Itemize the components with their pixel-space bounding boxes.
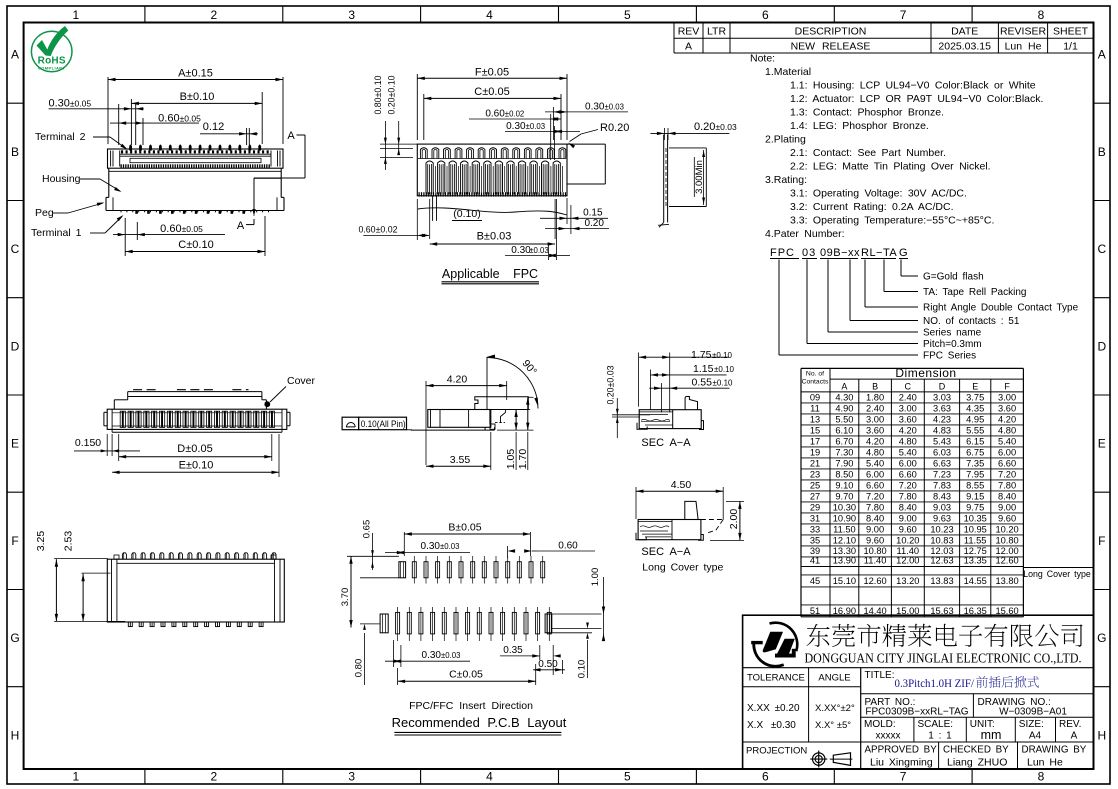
svg-text:3.00Min: 3.00Min: [694, 160, 705, 194]
svg-text:16.35: 16.35: [964, 606, 987, 616]
svg-text:G: G: [1097, 631, 1106, 645]
svg-text:(0.10): (0.10): [453, 208, 480, 220]
svg-text:12.03: 12.03: [930, 546, 953, 556]
svg-text:13.80: 13.80: [995, 576, 1018, 586]
svg-text:5.40: 5.40: [899, 447, 917, 457]
svg-text:10.20: 10.20: [995, 524, 1018, 534]
svg-text:3.60: 3.60: [899, 414, 917, 424]
svg-text:29: 29: [810, 502, 820, 512]
svg-text:Liu Xingming: Liu Xingming: [870, 757, 933, 769]
svg-text:F: F: [1004, 381, 1010, 391]
svg-text:6.60: 6.60: [899, 469, 917, 479]
svg-text:33: 33: [810, 524, 820, 534]
svg-text:APPROVED BY: APPROVED BY: [865, 745, 938, 756]
svg-text:A: A: [11, 48, 19, 62]
svg-text:Series name: Series name: [923, 328, 982, 339]
svg-text:9.60: 9.60: [998, 513, 1016, 523]
svg-text:Peg: Peg: [35, 207, 54, 219]
svg-text:7: 7: [900, 770, 907, 784]
svg-text:X.X ±0.30: X.X ±0.30: [747, 720, 796, 731]
svg-text:3.00: 3.00: [998, 392, 1016, 402]
svg-text:4.35: 4.35: [966, 403, 984, 413]
svg-text:6: 6: [762, 8, 769, 22]
svg-text:A: A: [1098, 48, 1106, 62]
svg-text:10.90: 10.90: [833, 513, 856, 523]
svg-text:13: 13: [810, 414, 820, 424]
svg-text:NO. of contacts : 51: NO. of contacts : 51: [923, 316, 1020, 327]
svg-text:C±0.05: C±0.05: [449, 669, 483, 681]
svg-text:0.12: 0.12: [203, 121, 224, 133]
svg-text:6.00: 6.00: [866, 469, 884, 479]
svg-text:27: 27: [810, 491, 820, 501]
svg-text:12.75: 12.75: [964, 546, 987, 556]
svg-text:4.50: 4.50: [671, 479, 692, 491]
svg-text:16.90: 16.90: [833, 606, 856, 616]
svg-text:6.00: 6.00: [899, 458, 917, 468]
svg-text:35: 35: [810, 535, 820, 545]
svg-text:B±0.05: B±0.05: [448, 522, 481, 534]
svg-text:5: 5: [624, 8, 631, 22]
svg-text:0.60±0.05: 0.60±0.05: [160, 223, 203, 235]
svg-text:5.50: 5.50: [835, 414, 853, 424]
svg-text:4.80: 4.80: [866, 447, 884, 457]
svg-text:0.30±0.03: 0.30±0.03: [585, 102, 624, 113]
svg-text:12.60: 12.60: [995, 556, 1018, 566]
svg-text:5.40: 5.40: [866, 458, 884, 468]
svg-text:2.53: 2.53: [63, 531, 75, 552]
svg-text:Contacts: Contacts: [802, 379, 829, 386]
svg-text:B: B: [11, 145, 19, 159]
svg-text:F±0.05: F±0.05: [475, 67, 509, 79]
svg-text:xxxxx: xxxxx: [876, 731, 901, 742]
svg-text:Housing: Housing: [42, 173, 81, 185]
svg-text:3.1: Operating Voltage: 30V AC: 3.1: Operating Voltage: 30V AC/DC.: [790, 188, 967, 200]
svg-text:A: A: [237, 220, 245, 232]
svg-text:13.83: 13.83: [930, 576, 953, 586]
svg-text:9.63: 9.63: [933, 513, 951, 523]
svg-text:W−0309B−A01: W−0309B−A01: [999, 707, 1067, 718]
svg-text:10.80: 10.80: [863, 546, 886, 556]
svg-text:13.20: 13.20: [896, 576, 919, 586]
svg-text:5.55: 5.55: [966, 425, 984, 435]
svg-text:DATE: DATE: [951, 26, 978, 38]
svg-text:15.00: 15.00: [896, 606, 919, 616]
svg-text:6.03: 6.03: [933, 447, 951, 457]
svg-text:SEC A−A: SEC A−A: [641, 546, 691, 558]
svg-text:REV.: REV.: [1059, 719, 1081, 730]
svg-text:C±0.10: C±0.10: [178, 239, 213, 251]
svg-text:G: G: [899, 247, 908, 259]
svg-text:12.63: 12.63: [930, 556, 953, 566]
svg-text:2.40: 2.40: [866, 403, 884, 413]
svg-text:13.35: 13.35: [964, 556, 987, 566]
svg-text:±0.10: ±0.10: [712, 351, 733, 360]
svg-text:7.30: 7.30: [835, 447, 853, 457]
svg-text:7.95: 7.95: [966, 469, 984, 479]
svg-text:Long Cover type: Long Cover type: [642, 562, 723, 574]
svg-text:2.40: 2.40: [899, 392, 917, 402]
svg-text:Applicable FPC: Applicable FPC: [442, 267, 538, 281]
svg-text:D: D: [11, 339, 20, 353]
svg-text:10.23: 10.23: [930, 524, 953, 534]
svg-text:3: 3: [348, 8, 355, 22]
svg-text:14.55: 14.55: [964, 576, 987, 586]
svg-text:SCALE:: SCALE:: [918, 719, 954, 730]
svg-text:LTR: LTR: [707, 26, 726, 38]
svg-text:1.15: 1.15: [693, 363, 714, 375]
svg-text:19: 19: [810, 447, 820, 457]
svg-text:17: 17: [810, 436, 820, 446]
svg-text:TITLE:: TITLE:: [865, 670, 895, 681]
svg-text:R0.20: R0.20: [600, 122, 629, 134]
svg-text:8.55: 8.55: [966, 480, 984, 490]
svg-text:10.95: 10.95: [964, 524, 987, 534]
svg-text:TOLERANCE: TOLERANCE: [747, 673, 805, 684]
svg-text:Lun He: Lun He: [1005, 41, 1042, 53]
svg-text:7.80: 7.80: [866, 502, 884, 512]
svg-text:D±0.05: D±0.05: [177, 443, 212, 455]
svg-text:11: 11: [810, 403, 820, 413]
svg-text:3.00: 3.00: [866, 414, 884, 424]
svg-text:10.80: 10.80: [995, 535, 1018, 545]
svg-text:41: 41: [810, 556, 820, 566]
svg-text:15.60: 15.60: [995, 606, 1018, 616]
svg-text:9.00: 9.00: [899, 513, 917, 523]
svg-text:REV: REV: [678, 26, 700, 38]
svg-text:A: A: [1071, 731, 1078, 742]
svg-text:C: C: [11, 242, 20, 256]
svg-text:FPC: FPC: [770, 247, 795, 259]
svg-text:14.40: 14.40: [863, 606, 886, 616]
svg-text:6.70: 6.70: [835, 436, 853, 446]
svg-text:1.2: Actuator: LCP OR PA9T UL9: 1.2: Actuator: LCP OR PA9T UL94−V0 Color…: [790, 93, 1043, 105]
svg-text:3.25: 3.25: [35, 531, 47, 552]
svg-text:5.43: 5.43: [933, 436, 951, 446]
svg-text:±0.10: ±0.10: [713, 379, 734, 388]
svg-text:1/1: 1/1: [1063, 41, 1078, 53]
svg-text:4.20: 4.20: [447, 374, 468, 386]
svg-text:3.Rating:: 3.Rating:: [765, 174, 807, 186]
svg-text:6.63: 6.63: [933, 458, 951, 468]
svg-text:Terminal 2: Terminal 2: [35, 131, 86, 143]
svg-text:4.23: 4.23: [933, 414, 951, 424]
svg-text:12.10: 12.10: [833, 535, 856, 545]
svg-text:09B−xx: 09B−xx: [820, 247, 860, 259]
svg-text:11.50: 11.50: [833, 524, 856, 534]
svg-text:ANGLE: ANGLE: [818, 673, 850, 684]
svg-text:7.80: 7.80: [899, 491, 917, 501]
svg-text:0.20±0.10: 0.20±0.10: [387, 75, 397, 114]
svg-text:3.63: 3.63: [933, 403, 951, 413]
svg-text:3.00: 3.00: [899, 403, 917, 413]
svg-text:9.10: 9.10: [835, 480, 853, 490]
svg-text:7.90: 7.90: [835, 458, 853, 468]
svg-text:0.60±0.02: 0.60±0.02: [485, 108, 524, 119]
svg-text:3.3: Operating Temperature:−55: 3.3: Operating Temperature:−55°C~+85°C.: [790, 215, 994, 227]
svg-text:B: B: [1098, 145, 1106, 159]
svg-text:8.40: 8.40: [866, 513, 884, 523]
svg-text:1.4: LEG: Phosphor Bronze.: 1.4: LEG: Phosphor Bronze.: [790, 120, 929, 132]
svg-text:4.83: 4.83: [933, 425, 951, 435]
svg-text:0.10: 0.10: [577, 660, 588, 679]
svg-text:COMPLIANT: COMPLIANT: [38, 65, 66, 70]
svg-text:6.15: 6.15: [966, 436, 984, 446]
svg-text:Pitch=0.3mm: Pitch=0.3mm: [923, 339, 982, 350]
svg-text:F: F: [11, 534, 18, 548]
svg-text:G: G: [10, 631, 19, 645]
svg-text:11.40: 11.40: [897, 546, 920, 556]
svg-text:A: A: [287, 130, 295, 142]
svg-text:FPC/FFC Insert Direction: FPC/FFC Insert Direction: [409, 700, 533, 712]
svg-text:8.43: 8.43: [933, 491, 951, 501]
svg-text:H: H: [1097, 728, 1106, 742]
svg-text:Lun He: Lun He: [1027, 757, 1063, 769]
svg-text:7.35: 7.35: [966, 458, 984, 468]
svg-text:MOLD:: MOLD:: [864, 719, 896, 730]
svg-text:E: E: [972, 381, 978, 391]
svg-text:2.2: LEG: Matte Tin Plating Ov: 2.2: LEG: Matte Tin Plating Over Nickel.: [790, 161, 991, 173]
svg-text:D: D: [1097, 339, 1106, 353]
svg-text:0.35: 0.35: [503, 645, 523, 656]
svg-text:23: 23: [810, 469, 820, 479]
svg-text:10.20: 10.20: [896, 535, 919, 545]
svg-text:C±0.05: C±0.05: [474, 86, 509, 98]
svg-text:0.30±0.03: 0.30±0.03: [422, 650, 461, 661]
svg-text:8.40: 8.40: [998, 491, 1016, 501]
svg-text:11.40: 11.40: [864, 556, 887, 566]
svg-text:3.2: Current Rating: 0.2A AC/D: 3.2: Current Rating: 0.2A AC/DC.: [790, 201, 954, 213]
svg-text:3: 3: [348, 770, 355, 784]
svg-text:39: 39: [810, 546, 820, 556]
svg-text:8.40: 8.40: [899, 502, 917, 512]
svg-text:Liang ZHUO: Liang ZHUO: [947, 757, 1007, 769]
svg-text:51: 51: [810, 606, 820, 616]
svg-text:0.30±0.03: 0.30±0.03: [506, 121, 545, 132]
svg-text:31: 31: [810, 513, 820, 523]
svg-text:8.50: 8.50: [835, 469, 853, 479]
svg-text:9.03: 9.03: [933, 502, 951, 512]
svg-text:9.75: 9.75: [966, 502, 984, 512]
svg-text:7: 7: [900, 8, 907, 22]
svg-text:1: 1: [73, 8, 80, 22]
svg-text:REVISER: REVISER: [1000, 26, 1047, 38]
svg-text:G=Gold flash: G=Gold flash: [923, 272, 984, 283]
svg-text:0.60±0.02: 0.60±0.02: [358, 224, 397, 234]
svg-text:21: 21: [810, 458, 820, 468]
svg-text:10.83: 10.83: [930, 535, 953, 545]
svg-text:15.63: 15.63: [930, 606, 953, 616]
svg-text:12.00: 12.00: [995, 546, 1018, 556]
svg-text:CHECKED BY: CHECKED BY: [943, 745, 1009, 756]
svg-text:4.95: 4.95: [966, 414, 984, 424]
svg-text:FPC0309B−xxRL−TAG: FPC0309B−xxRL−TAG: [865, 707, 968, 718]
svg-text:4.20: 4.20: [998, 414, 1016, 424]
svg-text:A: A: [685, 41, 692, 53]
svg-text:4.30: 4.30: [835, 392, 853, 402]
svg-text:2.1: Contact: See Part Number.: 2.1: Contact: See Part Number.: [790, 147, 946, 159]
svg-text:FPC Series: FPC Series: [923, 351, 976, 362]
svg-text:2.00: 2.00: [728, 509, 740, 530]
svg-text:Note:: Note:: [750, 53, 775, 65]
svg-text:C: C: [905, 381, 912, 391]
svg-text:4.Pater Number:: 4.Pater Number:: [765, 228, 845, 240]
svg-text:3.55: 3.55: [450, 454, 471, 466]
svg-text:10.30: 10.30: [833, 502, 856, 512]
svg-text:0.65: 0.65: [361, 520, 372, 539]
svg-text:TA: Tape Rell Packing: TA: Tape Rell Packing: [923, 287, 1026, 298]
svg-text:7.80: 7.80: [998, 480, 1016, 490]
svg-text:0.20: 0.20: [584, 218, 604, 229]
svg-text:11.55: 11.55: [964, 535, 987, 545]
svg-text:1.1: Housing: LCP UL94−V0 Colo: 1.1: Housing: LCP UL94−V0 Color:Black or…: [790, 80, 1036, 92]
svg-text:4.90: 4.90: [835, 403, 853, 413]
svg-text:4.20: 4.20: [899, 425, 917, 435]
svg-text:E: E: [1098, 437, 1106, 451]
svg-text:DESCRIPTION: DESCRIPTION: [795, 26, 867, 38]
svg-text:3.70: 3.70: [340, 588, 351, 607]
svg-text:Long Cover type: Long Cover type: [1023, 569, 1091, 579]
svg-text:3.60: 3.60: [866, 425, 884, 435]
svg-text:No. of: No. of: [806, 371, 824, 378]
svg-text:0.10(All Pin): 0.10(All Pin): [361, 419, 406, 429]
svg-text:9.15: 9.15: [966, 491, 984, 501]
svg-text:E±0.10: E±0.10: [179, 460, 214, 472]
svg-text:7.20: 7.20: [899, 480, 917, 490]
svg-text:1.75: 1.75: [691, 349, 712, 361]
svg-text:15: 15: [810, 425, 820, 435]
svg-text:12.00: 12.00: [896, 556, 919, 566]
svg-text:7.83: 7.83: [933, 480, 951, 490]
svg-text:±0.03: ±0.03: [716, 122, 737, 132]
svg-text:03: 03: [802, 247, 816, 259]
svg-text:2: 2: [210, 770, 217, 784]
svg-text:10.35: 10.35: [964, 513, 987, 523]
svg-text:3.75: 3.75: [966, 392, 984, 402]
svg-text:Cover: Cover: [287, 375, 316, 387]
svg-text:F: F: [1098, 534, 1105, 548]
svg-text:0.3Pitch1.0H ZIF/: 0.3Pitch1.0H ZIF/: [895, 676, 975, 690]
svg-text:9.70: 9.70: [835, 491, 853, 501]
svg-text:NEW RELEASE: NEW RELEASE: [791, 41, 871, 53]
svg-text:DONGGUAN CITY JINGLAI ELECTRON: DONGGUAN CITY JINGLAI ELECTRONIC CO.,LTD…: [805, 652, 1082, 667]
svg-text:7.23: 7.23: [933, 469, 951, 479]
svg-text:mm: mm: [981, 728, 1002, 742]
svg-text:DRAWING BY: DRAWING BY: [1022, 745, 1087, 756]
svg-text:4: 4: [486, 770, 493, 784]
svg-text:2025.03.15: 2025.03.15: [938, 41, 991, 53]
svg-text:±0.03: ±0.03: [529, 246, 548, 255]
svg-text:SHEET: SHEET: [1053, 26, 1089, 38]
svg-text:8: 8: [1038, 770, 1045, 784]
svg-text:0.20±0.03: 0.20±0.03: [605, 365, 615, 404]
svg-text:4.80: 4.80: [899, 436, 917, 446]
svg-text:X.XX°±2°: X.XX°±2°: [815, 703, 855, 714]
svg-text:1.3: Contact: Phosphor Bronze.: 1.3: Contact: Phosphor Bronze.: [790, 107, 944, 119]
svg-text:B: B: [872, 381, 878, 391]
svg-text:Terminal 1: Terminal 1: [31, 227, 82, 239]
svg-text:0.30±0.03: 0.30±0.03: [421, 541, 460, 552]
svg-text:3.03: 3.03: [933, 392, 951, 402]
svg-text:6: 6: [762, 770, 769, 784]
svg-text:09: 09: [810, 392, 820, 402]
svg-text:1 : 1: 1 : 1: [928, 731, 952, 742]
svg-text:13.30: 13.30: [833, 546, 856, 556]
svg-text:C: C: [1097, 242, 1106, 256]
svg-text:6.00: 6.00: [998, 447, 1016, 457]
svg-text:5: 5: [624, 770, 631, 784]
svg-text:1.Material: 1.Material: [765, 66, 811, 78]
svg-text:E: E: [11, 437, 19, 451]
svg-text:4: 4: [486, 8, 493, 22]
svg-text:9.00: 9.00: [998, 502, 1016, 512]
svg-text:B±0.10: B±0.10: [180, 91, 215, 103]
svg-text:D: D: [939, 381, 946, 391]
svg-text:9.60: 9.60: [866, 535, 884, 545]
svg-text:0.20: 0.20: [694, 121, 715, 133]
svg-text:0.30±0.05: 0.30±0.05: [48, 98, 91, 110]
svg-text:1.80: 1.80: [866, 392, 884, 402]
svg-text:0.150: 0.150: [75, 437, 101, 449]
svg-text:1.00: 1.00: [590, 568, 601, 587]
svg-text:8: 8: [1038, 8, 1045, 22]
svg-text:1.05: 1.05: [505, 449, 517, 470]
svg-text:±0.10: ±0.10: [714, 365, 735, 374]
svg-text:0.80±0.10: 0.80±0.10: [373, 75, 383, 114]
svg-text:9.60: 9.60: [899, 524, 917, 534]
svg-text:12.60: 12.60: [863, 576, 886, 586]
svg-text:X.XX ±0.20: X.XX ±0.20: [747, 703, 800, 714]
svg-text:1.70: 1.70: [517, 449, 529, 470]
svg-text:0.60: 0.60: [558, 541, 578, 552]
svg-text:A: A: [841, 381, 847, 391]
svg-text:0.55: 0.55: [692, 377, 713, 389]
svg-text:Recommended P.C.B Layout: Recommended P.C.B Layout: [392, 715, 567, 730]
svg-text:2.Plating: 2.Plating: [765, 134, 806, 146]
svg-text:45: 45: [810, 576, 820, 586]
svg-text:6.60: 6.60: [998, 458, 1016, 468]
svg-text:7.20: 7.20: [866, 491, 884, 501]
svg-text:RL−TA: RL−TA: [861, 247, 897, 259]
svg-text:4.80: 4.80: [998, 425, 1016, 435]
svg-text:X.X° ±5°: X.X° ±5°: [815, 720, 851, 731]
svg-text:Right Angle Double Contact Typ: Right Angle Double Contact Type: [923, 303, 1079, 314]
svg-text:4.20: 4.20: [866, 436, 884, 446]
svg-text:25: 25: [810, 480, 820, 490]
svg-text:6.10: 6.10: [835, 425, 853, 435]
svg-text:PROJECTION: PROJECTION: [746, 746, 807, 757]
svg-text:5.40: 5.40: [998, 436, 1016, 446]
svg-text:6.75: 6.75: [966, 447, 984, 457]
svg-text:15.10: 15.10: [833, 576, 856, 586]
svg-text:A4: A4: [1029, 731, 1042, 742]
svg-text:SEC A−A: SEC A−A: [641, 437, 691, 449]
svg-text:0.30: 0.30: [511, 245, 531, 256]
svg-text:9.00: 9.00: [866, 524, 884, 534]
svg-text:2: 2: [210, 8, 217, 22]
svg-text:H: H: [11, 728, 20, 742]
svg-text:Dimension: Dimension: [895, 366, 956, 380]
svg-text:3.60: 3.60: [998, 403, 1016, 413]
svg-text:1: 1: [73, 770, 80, 784]
svg-text:0.80: 0.80: [354, 659, 365, 678]
svg-text:7.20: 7.20: [998, 469, 1016, 479]
svg-text:13.90: 13.90: [833, 556, 856, 566]
svg-text:A±0.15: A±0.15: [178, 68, 213, 80]
svg-text:B±0.03: B±0.03: [477, 231, 512, 243]
svg-text:SIZE:: SIZE:: [1019, 719, 1044, 730]
svg-text:6.60: 6.60: [866, 480, 884, 490]
